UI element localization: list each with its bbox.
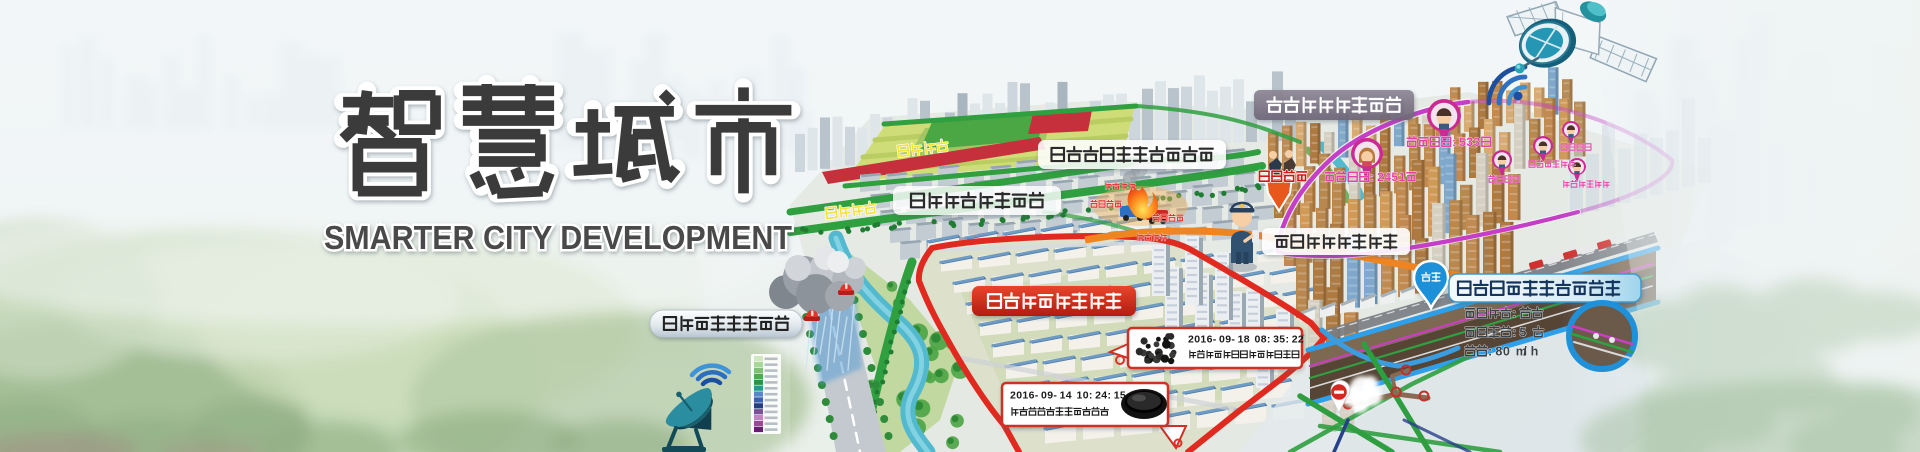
svg-text::: : — [1512, 325, 1516, 339]
svg-text::: : — [1267, 334, 1271, 346]
svg-text:h: h — [1531, 344, 1539, 358]
svg-text:9: 9 — [1225, 334, 1231, 346]
svg-text::: : — [1370, 170, 1374, 184]
svg-text:8: 8 — [1244, 334, 1250, 346]
svg-text:2: 2 — [1010, 390, 1016, 402]
svg-text:5: 5 — [1279, 334, 1285, 346]
svg-text:0: 0 — [1041, 390, 1047, 402]
svg-text::: : — [1286, 334, 1290, 346]
svg-text:6: 6 — [1207, 334, 1213, 346]
svg-text:-: - — [1213, 334, 1217, 346]
svg-text:0: 0 — [1219, 334, 1225, 346]
svg-text:3: 3 — [1273, 334, 1279, 346]
svg-text:5: 5 — [1519, 325, 1526, 339]
svg-text:5: 5 — [1459, 135, 1466, 149]
svg-text:1: 1 — [1399, 170, 1406, 184]
svg-text:1: 1 — [1238, 334, 1244, 346]
svg-text:2: 2 — [1188, 334, 1194, 346]
svg-text:0: 0 — [1083, 390, 1089, 402]
svg-text:2: 2 — [1377, 170, 1384, 184]
svg-text::: : — [1512, 306, 1516, 320]
svg-text:0: 0 — [1016, 390, 1022, 402]
svg-text:2: 2 — [1298, 334, 1304, 346]
svg-text::: : — [1452, 135, 1456, 149]
svg-text:1: 1 — [1022, 390, 1028, 402]
svg-text:-: - — [1053, 390, 1057, 402]
svg-text:9: 9 — [1047, 390, 1053, 402]
svg-text:0: 0 — [1255, 334, 1261, 346]
svg-text:2: 2 — [1095, 390, 1101, 402]
svg-text:6: 6 — [1029, 390, 1035, 402]
svg-text:0: 0 — [1503, 344, 1510, 358]
svg-text:-: - — [1035, 390, 1039, 402]
svg-text:4: 4 — [1384, 170, 1391, 184]
svg-text:8: 8 — [1495, 344, 1502, 358]
svg-text:1: 1 — [1200, 334, 1206, 346]
svg-text:5: 5 — [1391, 170, 1398, 184]
svg-text:2: 2 — [1292, 334, 1298, 346]
svg-text:1: 1 — [1114, 390, 1120, 402]
svg-text:4: 4 — [1101, 390, 1107, 402]
svg-text:-: - — [1231, 334, 1235, 346]
svg-text:1: 1 — [1060, 390, 1066, 402]
svg-text:3: 3 — [1473, 135, 1480, 149]
svg-text:0: 0 — [1194, 334, 1200, 346]
svg-text:1: 1 — [1077, 390, 1083, 402]
svg-text:/: / — [1523, 344, 1527, 358]
svg-text:4: 4 — [1066, 390, 1072, 402]
svg-text::: : — [1108, 390, 1112, 402]
svg-text:3: 3 — [1466, 135, 1473, 149]
svg-text:SMARTER CITY DEVELOPMENT: SMARTER CITY DEVELOPMENT — [324, 219, 792, 256]
svg-text::: : — [1488, 344, 1492, 358]
svg-text::: : — [1089, 390, 1093, 402]
svg-text:8: 8 — [1261, 334, 1267, 346]
